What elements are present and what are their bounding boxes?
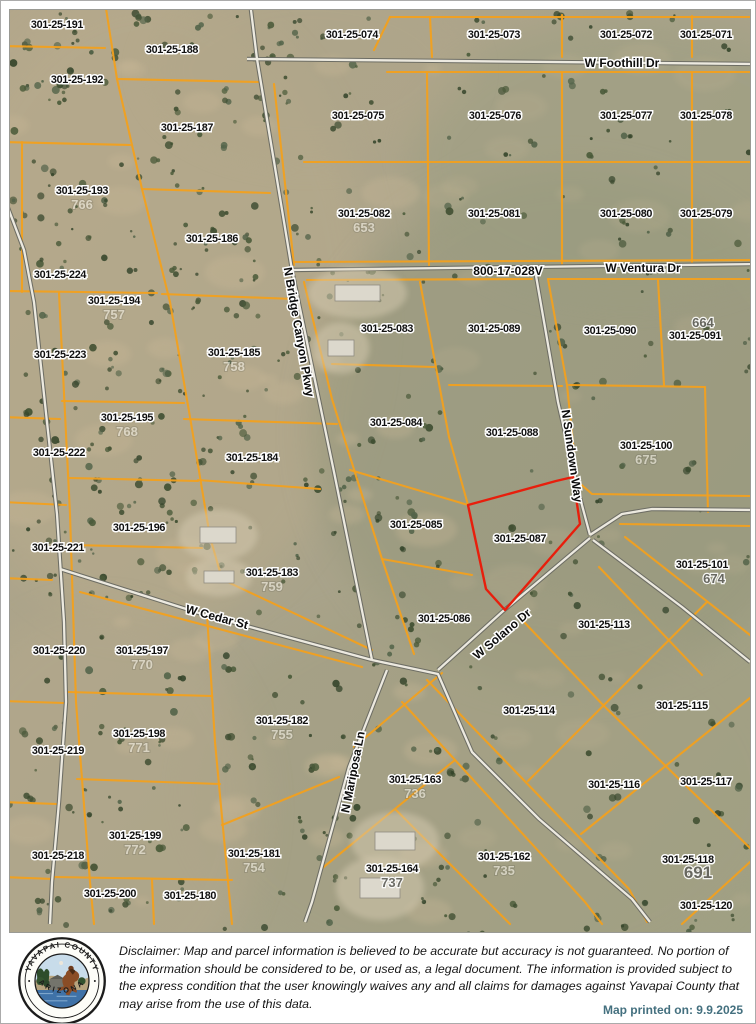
lot-number: 772 xyxy=(124,842,146,857)
parcel-label[interactable]: 301-25-113 xyxy=(578,619,630,631)
lot-number: 735 xyxy=(493,863,515,878)
lot-number: 757 xyxy=(103,307,125,322)
parcel-label[interactable]: 301-25-192 xyxy=(51,74,104,86)
lot-number: 758 xyxy=(223,359,245,374)
parcel-label[interactable]: 301-25-188 xyxy=(146,44,199,56)
lot-number: 737 xyxy=(381,875,403,890)
parcel-label[interactable]: 301-25-074 xyxy=(326,29,379,41)
yavapai-county-seal: YAVAPAI COUNTY ARIZONA xyxy=(17,936,107,1024)
parcel-label[interactable]: 301-25-086 xyxy=(418,613,471,625)
parcel-label[interactable]: 301-25-183 xyxy=(246,567,299,579)
parcel-label[interactable]: 301-25-221 xyxy=(32,542,85,554)
parcel-label[interactable]: 301-25-084 xyxy=(370,417,423,429)
parcel-label[interactable]: 301-25-117 xyxy=(680,776,732,788)
map-print-page: 7667577587687597707717727547556536646756… xyxy=(0,0,756,1024)
building xyxy=(204,571,234,583)
parcel-label[interactable]: 301-25-184 xyxy=(226,452,279,464)
building xyxy=(200,527,236,543)
aerial-parcel-canvas[interactable]: 7667577587687597707717727547556536646756… xyxy=(10,10,750,932)
parcel-label[interactable]: 301-25-120 xyxy=(680,900,733,912)
lot-number: 674 xyxy=(703,571,725,586)
parcel-label[interactable]: 301-25-073 xyxy=(468,29,521,41)
parcel-label[interactable]: 301-25-088 xyxy=(486,427,539,439)
parcel-label[interactable]: 301-25-164 xyxy=(366,863,419,875)
lot-number: 771 xyxy=(128,740,150,755)
lot-number: 754 xyxy=(243,860,265,875)
parcel-label[interactable]: 301-25-090 xyxy=(584,325,637,337)
parcel-label[interactable]: 301-25-118 xyxy=(662,854,714,866)
parcel-label[interactable]: 301-25-101 xyxy=(676,559,729,571)
parcel-label[interactable]: 301-25-224 xyxy=(34,269,87,281)
parcel-label[interactable]: 301-25-116 xyxy=(588,779,640,791)
parcel-label[interactable]: 301-25-218 xyxy=(32,850,85,862)
parcel-label[interactable]: 301-25-075 xyxy=(332,110,385,122)
parcel-label[interactable]: 301-25-082 xyxy=(338,208,391,220)
parcel-label[interactable]: 301-25-071 xyxy=(680,29,733,41)
parcel-label[interactable]: 301-25-091 xyxy=(669,330,722,342)
parcel-label[interactable]: 301-25-077 xyxy=(600,110,653,122)
street-label: W Foothill Dr xyxy=(585,56,660,70)
parcel-label[interactable]: 301-25-220 xyxy=(33,645,86,657)
print-date: Map printed on: 9.9.2025 xyxy=(603,1003,743,1017)
parcel-label[interactable]: 301-25-223 xyxy=(34,349,87,361)
lot-number: 759 xyxy=(261,579,283,594)
building xyxy=(335,285,380,301)
lot-number: 770 xyxy=(131,657,153,672)
parcel-label[interactable]: 301-25-180 xyxy=(164,890,217,902)
parcel-label[interactable]: 301-25-072 xyxy=(600,29,653,41)
parcel-label-selected[interactable]: 301-25-087 xyxy=(494,533,547,545)
parcel-label[interactable]: 301-25-115 xyxy=(656,700,708,712)
parcel-label[interactable]: 301-25-197 xyxy=(116,645,169,657)
parcel-label[interactable]: 301-25-200 xyxy=(84,888,137,900)
parcel-label[interactable]: 301-25-199 xyxy=(109,830,162,842)
parcel-label[interactable]: 301-25-222 xyxy=(33,447,86,459)
parcel-label[interactable]: 301-25-182 xyxy=(256,715,309,727)
parcel-label[interactable]: 301-25-162 xyxy=(478,851,531,863)
building xyxy=(328,340,354,356)
parcel-label[interactable]: 301-25-163 xyxy=(389,774,442,786)
parcel-label[interactable]: 301-25-187 xyxy=(161,122,214,134)
parcel-label[interactable]: 301-25-186 xyxy=(186,233,239,245)
parcel-label[interactable]: 301-25-219 xyxy=(32,745,85,757)
lot-number: 755 xyxy=(271,727,293,742)
parcel-label[interactable]: 301-25-081 xyxy=(468,208,521,220)
parcel-label[interactable]: 301-25-193 xyxy=(56,185,109,197)
parcel-label[interactable]: 301-25-185 xyxy=(208,347,261,359)
parcel-label[interactable]: 301-25-085 xyxy=(390,519,443,531)
parcel-label[interactable]: 301-25-078 xyxy=(680,110,733,122)
parcel-label[interactable]: 301-25-191 xyxy=(31,19,84,31)
terrain-tones xyxy=(10,10,750,932)
building xyxy=(375,832,415,850)
lot-number: 675 xyxy=(635,452,657,467)
parcel-label[interactable]: 301-25-089 xyxy=(468,323,521,335)
parcel-label[interactable]: 301-25-076 xyxy=(469,110,522,122)
parcel-label[interactable]: 301-25-079 xyxy=(680,208,733,220)
lot-number: 736 xyxy=(404,786,426,801)
lot-number: 664 xyxy=(692,315,714,330)
street-label: W Ventura Dr xyxy=(605,261,681,275)
lot-number: 768 xyxy=(116,424,138,439)
lot-number: 766 xyxy=(71,197,93,212)
parcel-label[interactable]: 301-25-100 xyxy=(620,440,673,452)
parcel-map[interactable]: 7667577587687597707717727547556536646756… xyxy=(9,9,751,933)
parcel-label[interactable]: 301-25-198 xyxy=(113,728,166,740)
parcel-label[interactable]: 301-25-195 xyxy=(101,412,154,424)
map-footer: YAVAPAI COUNTY ARIZONA Disclaimer: Map a… xyxy=(1,933,756,1024)
parcel-label[interactable]: 301-25-194 xyxy=(88,295,141,307)
parcel-label[interactable]: 301-25-114 xyxy=(503,705,555,717)
street-label: 800-17-028V xyxy=(473,264,542,278)
parcel-label[interactable]: 301-25-196 xyxy=(113,522,166,534)
parcel-label[interactable]: 301-25-080 xyxy=(600,208,653,220)
lot-number: 653 xyxy=(353,220,375,235)
parcel-label[interactable]: 301-25-083 xyxy=(361,323,414,335)
parcel-label[interactable]: 301-25-181 xyxy=(228,848,281,860)
